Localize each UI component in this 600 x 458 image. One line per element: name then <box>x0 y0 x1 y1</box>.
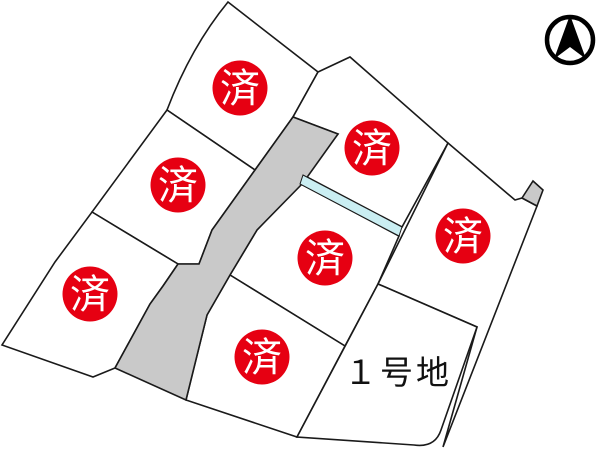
sold-stamp: 済 <box>63 267 118 322</box>
sold-stamp: 済 <box>151 158 206 213</box>
sold-stamp: 済 <box>213 61 268 116</box>
sold-stamp: 済 <box>298 231 353 286</box>
north-arrow-compass-icon <box>547 15 593 63</box>
sold-stamp-text: 済 <box>220 66 260 112</box>
sold-stamp-text: 済 <box>242 335 282 381</box>
sold-stamp-text: 済 <box>352 126 392 172</box>
sold-stamp: 済 <box>345 121 400 176</box>
sold-stamp: 済 <box>436 209 491 264</box>
sold-stamp-text: 済 <box>158 163 198 209</box>
sold-stamp-text: 済 <box>305 236 345 282</box>
available-lot-label: １号地 <box>344 353 452 392</box>
sold-stamp-text: 済 <box>70 272 110 318</box>
lot-map-svg: １号地 済済済済済済済 <box>0 0 600 458</box>
sold-stamp-text: 済 <box>443 214 483 260</box>
sold-stamp: 済 <box>235 330 290 385</box>
lot-map-canvas: １号地 済済済済済済済 <box>0 0 600 458</box>
